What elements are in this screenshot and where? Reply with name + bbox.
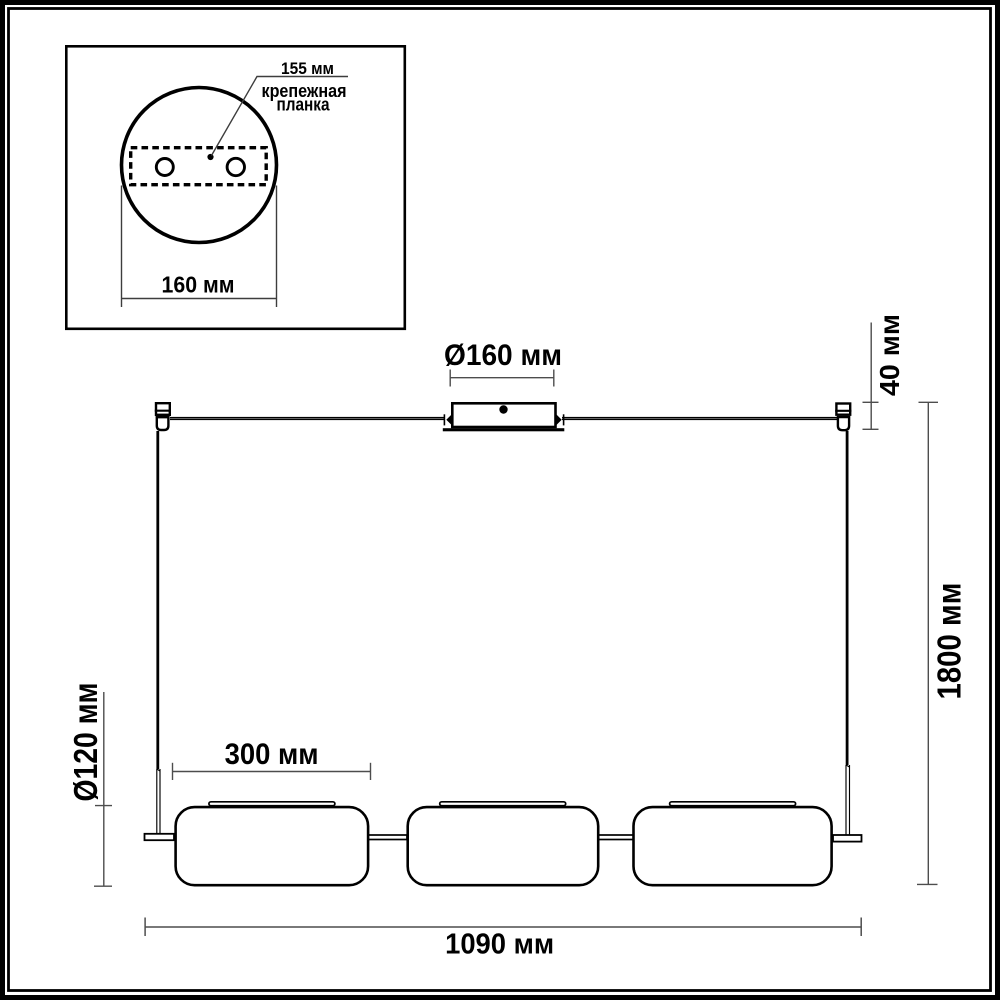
svg-text:1090 мм: 1090 мм [445, 929, 554, 961]
svg-text:40 мм: 40 мм [874, 314, 905, 396]
svg-text:160 мм: 160 мм [162, 272, 235, 298]
svg-text:300 мм: 300 мм [225, 738, 319, 771]
svg-text:планка: планка [277, 94, 331, 115]
svg-text:1800 мм: 1800 мм [931, 583, 968, 700]
svg-text:Ø160 мм: Ø160 мм [444, 339, 562, 372]
svg-text:155 мм: 155 мм [281, 59, 334, 78]
svg-text:Ø120 мм: Ø120 мм [67, 683, 104, 802]
